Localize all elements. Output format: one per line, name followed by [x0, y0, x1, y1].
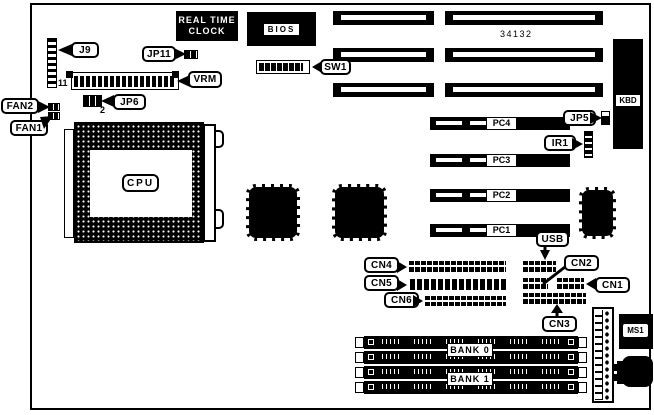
j9-callout: J9 [71, 42, 99, 58]
cn6-header [424, 296, 506, 306]
jp11-jumper [184, 50, 198, 59]
bank0-label: BANK 0 [447, 343, 493, 357]
fan2-header [48, 103, 60, 111]
pci-slot-pc3: PC3 [430, 154, 570, 167]
usb-header [522, 261, 556, 272]
qfp-chip [579, 187, 616, 239]
pc1-label: PC1 [486, 224, 517, 237]
jp5-jumper [601, 111, 610, 125]
bios-chip: BIOS [247, 12, 316, 46]
cpu-label: CPU [122, 174, 159, 192]
cn6-callout: CN6 [384, 292, 419, 308]
jp6-callout: JP6 [113, 94, 146, 110]
pc2-label: PC2 [486, 189, 517, 202]
isa-slot [445, 11, 603, 25]
ir1-header [584, 131, 593, 158]
isa-slot [445, 83, 603, 97]
cn2-header [522, 278, 548, 289]
cn5-header [408, 279, 506, 290]
cn1-callout: CN1 [595, 277, 630, 293]
pci-slot-pc2: PC2 [430, 189, 570, 202]
cpu-socket-side-rail [64, 129, 74, 238]
board-part-number: 34132 [500, 29, 533, 39]
isa-slot [333, 83, 434, 97]
cn3-header [522, 293, 586, 304]
vrm-slot-key [172, 71, 179, 78]
ms1-label: MS1 [622, 323, 649, 338]
kbd-connector: KBD [613, 39, 643, 149]
mouse-port-pin [612, 364, 619, 371]
cn4-header [408, 261, 506, 272]
mouse-port [622, 356, 653, 387]
fan2-callout: FAN2 [1, 98, 39, 114]
vrm-callout: VRM [188, 71, 222, 88]
motherboard-diagram: REAL TIME CLOCK BIOS 34132 KBD 11 J9 JP1… [0, 0, 654, 415]
sw1-callout: SW1 [320, 59, 351, 75]
bios-label: BIOS [263, 23, 301, 36]
rtc-label-line2: CLOCK [189, 26, 226, 37]
jp11-callout: JP11 [142, 46, 176, 62]
ms1-chip: MS1 [619, 314, 653, 349]
pc3-label: PC3 [486, 154, 517, 167]
cpu-socket-lever [203, 124, 216, 242]
mouse-port-pin [612, 374, 619, 381]
jp6-pin-marker: 2 [100, 105, 105, 115]
fan1-header [48, 112, 60, 120]
bank1-label: BANK 1 [447, 372, 493, 386]
fan1-callout: FAN1 [10, 120, 48, 136]
isa-slot [445, 48, 603, 62]
cn1-header [556, 278, 584, 289]
isa-slot [333, 11, 434, 25]
j9-pin-marker: 11 [58, 78, 68, 88]
rtc-chip: REAL TIME CLOCK [176, 11, 238, 41]
cn5-callout: CN5 [364, 275, 399, 291]
cn2-callout: CN2 [564, 255, 599, 271]
usb-callout: USB [536, 231, 569, 247]
kbd-label: KBD [615, 94, 641, 107]
ir1-callout: IR1 [544, 135, 576, 151]
pc4-label: PC4 [486, 117, 517, 130]
cn3-callout: CN3 [542, 316, 577, 332]
qfp-chip [246, 184, 300, 241]
vrm-slot [71, 72, 179, 90]
vrm-slot-key [66, 71, 73, 78]
cpu-socket: CPU [74, 122, 204, 243]
qfp-chip [332, 184, 387, 241]
sw1-dip-switch [256, 60, 310, 74]
cn4-callout: CN4 [364, 257, 399, 273]
cpu-socket-window: CPU [90, 150, 192, 217]
power-connector [592, 307, 614, 403]
j9-header [47, 38, 57, 88]
jp5-callout: JP5 [563, 110, 596, 126]
rtc-label-line1: REAL TIME [178, 15, 235, 26]
pci-slot-pc4: PC4 [430, 117, 570, 130]
